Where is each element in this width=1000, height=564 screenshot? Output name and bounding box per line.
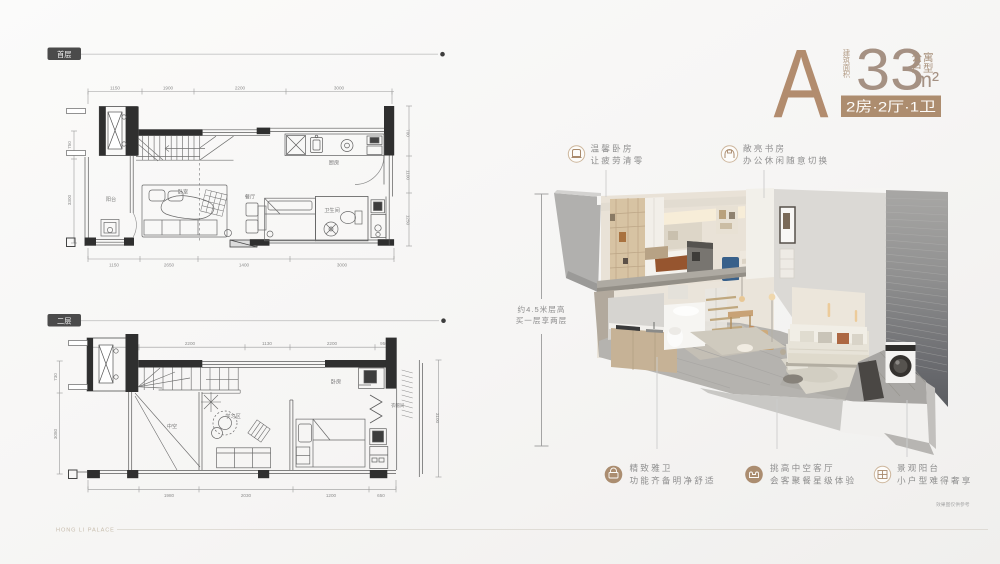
svg-text:m²: m²	[915, 69, 940, 92]
svg-text:3100: 3100	[435, 413, 440, 424]
svg-text:A: A	[774, 31, 829, 139]
svg-text:卫生间: 卫生间	[324, 206, 340, 214]
svg-text:衣帽间: 衣帽间	[391, 402, 404, 409]
svg-text:温馨卧房: 温馨卧房	[591, 143, 634, 154]
svg-text:HONG LI PALACE: HONG LI PALACE	[56, 528, 115, 534]
svg-text:1250: 1250	[406, 215, 411, 226]
svg-text:积: 积	[843, 70, 851, 79]
svg-text:730: 730	[53, 373, 58, 381]
svg-text:2200: 2200	[327, 341, 338, 346]
svg-text:二层: 二层	[57, 317, 71, 326]
svg-text:1100: 1100	[406, 170, 411, 180]
svg-text:700: 700	[406, 129, 411, 137]
svg-text:办公休闲随意切换: 办公休闲随意切换	[743, 155, 829, 166]
svg-text:1150: 1150	[109, 263, 119, 268]
svg-text:功能齐备明净舒适: 功能齐备明净舒适	[630, 475, 716, 486]
svg-text:2房·2厅·1卫: 2房·2厅·1卫	[846, 99, 936, 115]
svg-text:约4.5米层高: 约4.5米层高	[518, 304, 566, 314]
svg-text:1200: 1200	[326, 493, 337, 498]
svg-text:卧房: 卧房	[331, 378, 341, 386]
svg-text:2650: 2650	[164, 263, 175, 268]
svg-text:1980: 1980	[164, 493, 175, 498]
svg-text:3000: 3000	[334, 86, 345, 91]
svg-text:3080: 3080	[53, 428, 58, 439]
svg-text:阳台: 阳台	[106, 195, 116, 203]
svg-text:2200: 2200	[235, 86, 246, 91]
svg-text:学习区: 学习区	[225, 412, 241, 420]
svg-text:景观阳台: 景观阳台	[897, 462, 940, 473]
svg-text:会客聚餐星级体验: 会客聚餐星级体验	[770, 475, 856, 486]
svg-text:2200: 2200	[185, 341, 196, 346]
svg-text:餐厅: 餐厅	[245, 193, 255, 201]
svg-text:首层: 首层	[57, 50, 71, 59]
svg-text:小户型难得奢享: 小户型难得奢享	[897, 475, 973, 486]
svg-text:买一层享两层: 买一层享两层	[516, 315, 568, 325]
svg-text:1150: 1150	[110, 86, 120, 91]
svg-text:750: 750	[67, 141, 72, 149]
svg-text:中空: 中空	[167, 422, 177, 430]
svg-text:让疲劳清零: 让疲劳清零	[591, 155, 645, 166]
svg-text:厨房: 厨房	[329, 159, 339, 167]
svg-text:3000: 3000	[337, 263, 348, 268]
svg-text:敞亮书房: 敞亮书房	[743, 143, 786, 154]
svg-text:精致雅卫: 精致雅卫	[630, 462, 673, 473]
svg-text:1400: 1400	[239, 263, 250, 268]
svg-text:3300: 3300	[67, 194, 72, 205]
svg-text:2030: 2030	[241, 493, 252, 498]
svg-text:1130: 1130	[262, 341, 272, 346]
svg-text:挑高中空客厅: 挑高中空客厅	[770, 462, 835, 473]
svg-text:1900: 1900	[163, 86, 174, 91]
svg-text:效果图仅供参考: 效果图仅供参考	[936, 501, 970, 508]
svg-text:650: 650	[377, 493, 385, 498]
svg-text:卧室: 卧室	[178, 188, 188, 196]
